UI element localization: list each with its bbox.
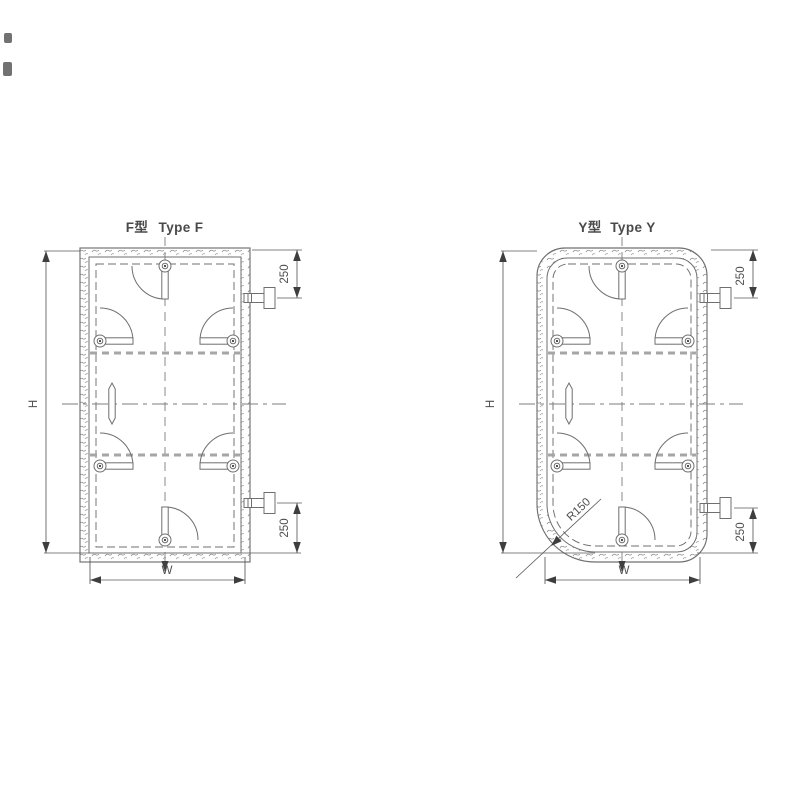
dim-hinge-top-label: 250 [279,264,291,283]
panel-title-en: Type Y [610,220,655,235]
dim-hinge-bottom-label: 250 [279,518,291,537]
clip-lower-right [200,433,239,472]
door-handle [566,383,572,424]
clip-lower-right [655,433,694,472]
dim-hinge-top-label: 250 [735,266,747,285]
clip-top-center [589,260,628,299]
dim-hinge-top: 250 [711,250,758,298]
dim-width-label: W [619,565,630,577]
dim-width-label: W [162,565,173,577]
panel-title-cn: F型 [126,219,149,235]
clip-top-center [132,260,171,299]
clip-lower-left [551,433,590,472]
panel-type-f: F型 Type F [28,219,302,584]
dim-height-label: H [28,400,40,408]
clip-upper-left [94,308,133,347]
dim-height-label: H [485,400,497,408]
clip-upper-right [200,308,239,347]
clip-upper-left [551,308,590,347]
clip-upper-right [655,308,694,347]
panel-title-cn: Y型 [578,219,601,235]
clip-bottom-center [616,507,655,546]
door-handle [109,383,115,424]
clip-bottom-center [159,507,198,546]
technical-drawing: F型 Type F [0,0,800,800]
clip-lower-left [94,433,133,472]
dim-hinge-bottom: 250 [734,508,758,553]
dim-hinge-top: 250 [252,250,302,298]
dim-hinge-bottom-label: 250 [735,522,747,541]
dim-hinge-bottom: 250 [277,503,302,553]
panel-type-y: Y型 Type Y [485,219,758,584]
panel-title-en: Type F [159,220,204,235]
